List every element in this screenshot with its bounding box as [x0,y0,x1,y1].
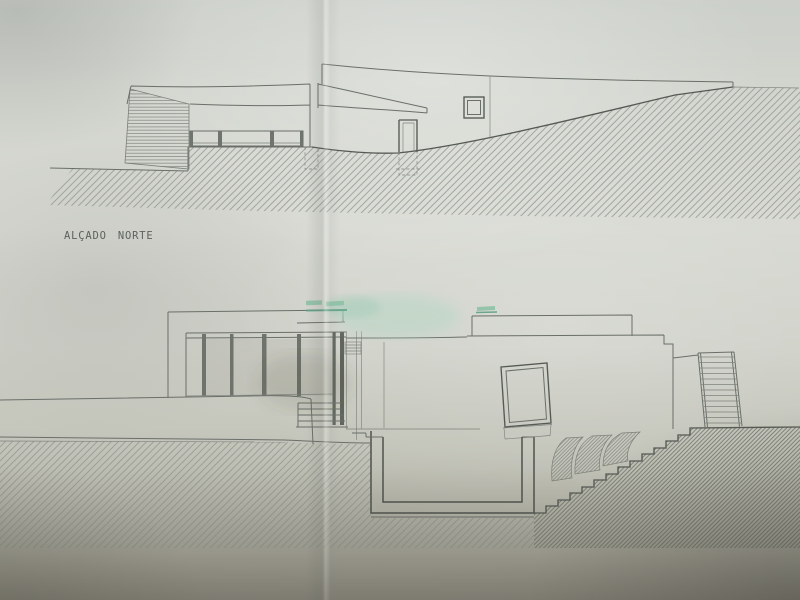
architectural-drawing-photo: ALÇADO NORTE [0,0,800,600]
south-ladder [673,352,742,427]
south-vent-strip [345,331,480,440]
paper-fold [306,0,340,600]
north-small-window [464,97,484,118]
north-louvre-wall [125,89,189,169]
south-window [501,363,552,439]
south-pool-section [352,431,534,517]
south-ground-hatch-under-pool [371,518,534,548]
label-alcado-norte: ALÇADO NORTE [64,230,153,242]
window-mullion [190,131,193,146]
window-mullion [218,131,222,146]
south-elevation-drawing [0,310,800,548]
glazing-mullion [230,334,234,396]
elevation-drawings-svg [0,0,800,600]
north-window-band [190,131,303,146]
highlighter-stroke-right [477,308,495,309]
glazing-mullion [202,334,206,396]
window-mullion [270,131,274,146]
window-mullion [300,131,303,146]
highlighter-underline-right [476,312,497,313]
north-upper-block-outline [322,64,733,87]
north-elevation-drawing [46,64,800,219]
